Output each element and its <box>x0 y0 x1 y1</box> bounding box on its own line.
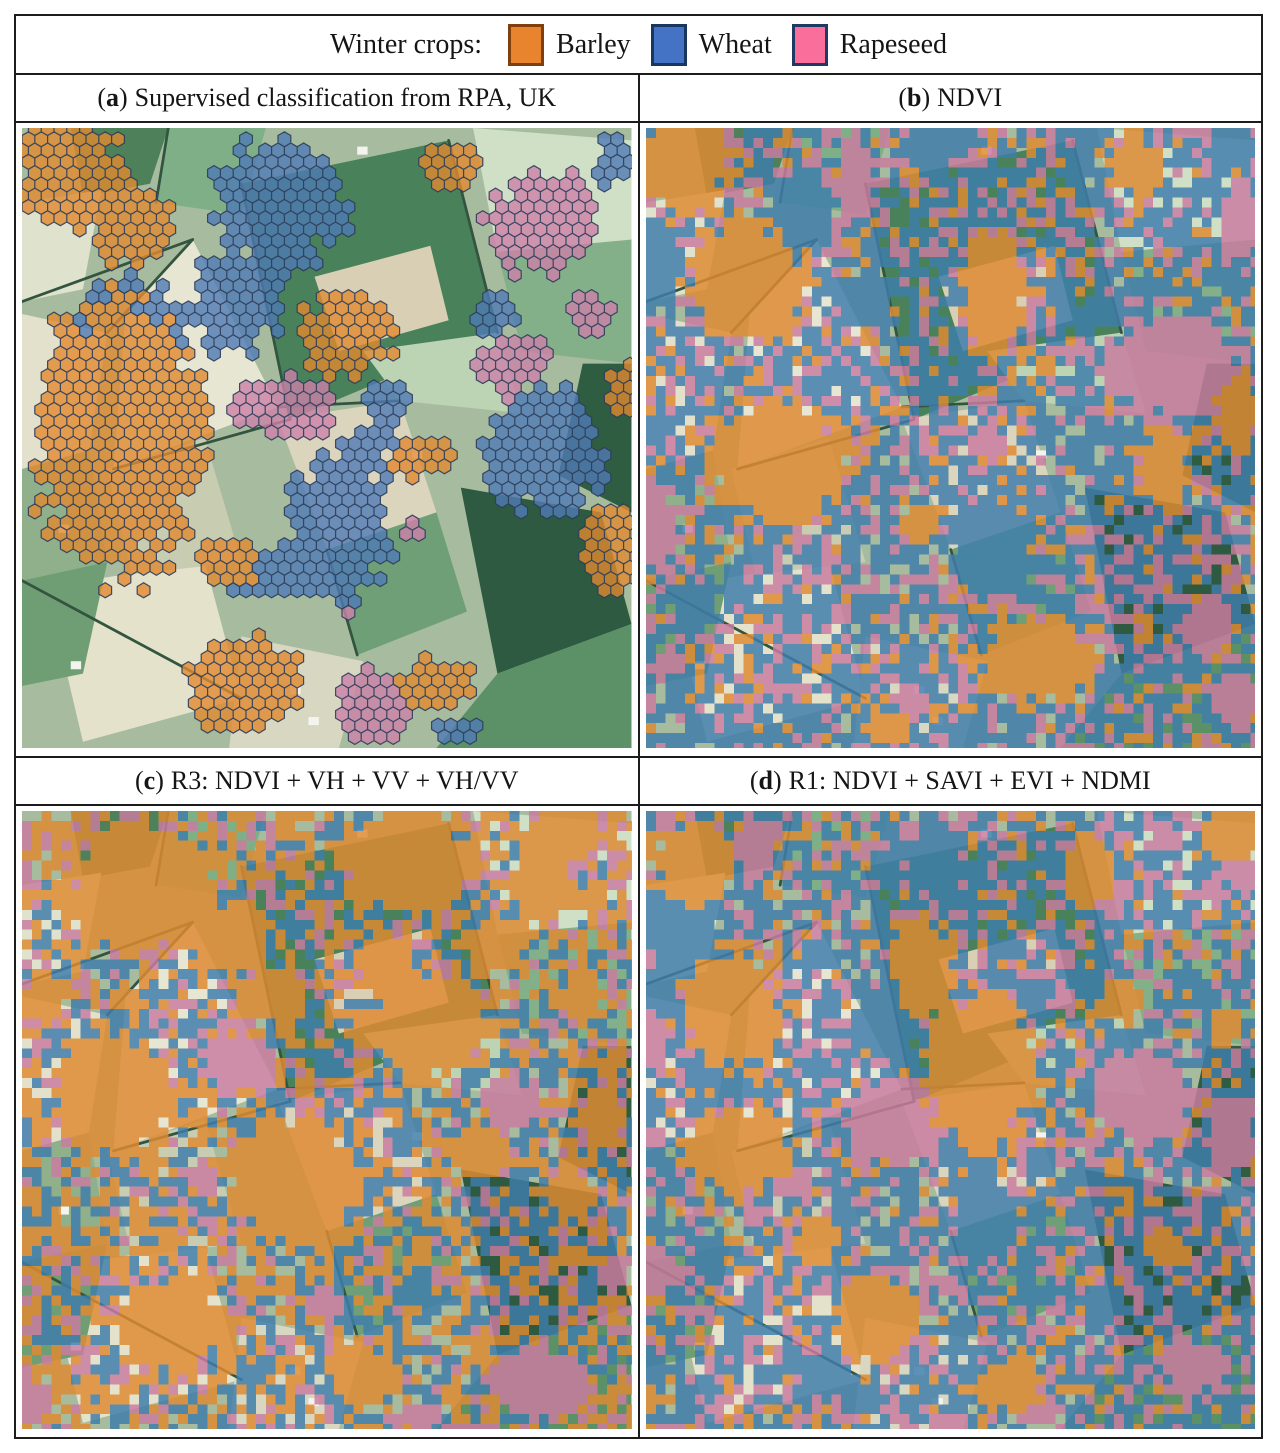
map-panel-a <box>16 123 640 756</box>
caption-d-letter: d <box>759 766 773 796</box>
winter-crops-legend: Winter crops: Barley Wheat Rapeseed <box>16 16 1261 75</box>
caption-b-letter: b <box>907 83 921 113</box>
rapeseed-swatch-icon <box>792 24 828 66</box>
caption-c-close: ) <box>155 766 164 796</box>
caption-b-text: NDVI <box>937 83 1002 113</box>
legend-item-barley: Barley <box>488 24 631 66</box>
caption-c-letter: c <box>144 766 156 796</box>
legend-item-rapeseed: Rapeseed <box>772 24 947 66</box>
map-panel-b <box>640 123 1262 756</box>
panel-d-caption: (d)R1: NDVI + SAVI + EVI + NDMI <box>640 758 1262 804</box>
legend-title: Winter crops: <box>330 29 482 61</box>
map-d-svg <box>646 811 1256 1429</box>
barley-label: Barley <box>556 29 631 61</box>
panel-b-caption: (b)NDVI <box>640 75 1262 121</box>
caption-b-open: ( <box>898 83 907 113</box>
rapeseed-label: Rapeseed <box>840 29 947 61</box>
map-panel-c <box>16 806 640 1437</box>
panel-c-caption: (c)R3: NDVI + VH + VV + VH/VV <box>16 758 640 804</box>
caption-a-close: ) <box>119 83 128 113</box>
caption-d-text: R1: NDVI + SAVI + EVI + NDMI <box>789 766 1151 796</box>
map-b-svg <box>646 128 1256 748</box>
caption-d-open: ( <box>750 766 759 796</box>
caption-b-close: ) <box>921 83 930 113</box>
wheat-swatch-icon <box>651 24 687 66</box>
map-panel-d <box>640 806 1262 1437</box>
map-a-svg <box>22 128 632 748</box>
caption-c-text: R3: NDVI + VH + VV + VH/VV <box>171 766 519 796</box>
caption-a-letter: a <box>106 83 119 113</box>
panel-a-caption: (a)Supervised classification from RPA, U… <box>16 75 640 121</box>
caption-row-top: (a)Supervised classification from RPA, U… <box>16 75 1261 123</box>
map-c-svg <box>22 811 632 1429</box>
map-row-bottom <box>16 806 1261 1437</box>
caption-a-open: ( <box>97 83 106 113</box>
caption-d-close: ) <box>773 766 782 796</box>
caption-a-text: Supervised classification from RPA, UK <box>135 83 557 113</box>
wheat-label: Wheat <box>699 29 772 61</box>
map-row-top <box>16 123 1261 758</box>
figure-table: Winter crops: Barley Wheat Rapeseed (a)S… <box>14 14 1263 1439</box>
legend-item-wheat: Wheat <box>631 24 772 66</box>
caption-c-open: ( <box>135 766 144 796</box>
barley-swatch-icon <box>508 24 544 66</box>
caption-row-bottom: (c)R3: NDVI + VH + VV + VH/VV (d)R1: NDV… <box>16 758 1261 806</box>
